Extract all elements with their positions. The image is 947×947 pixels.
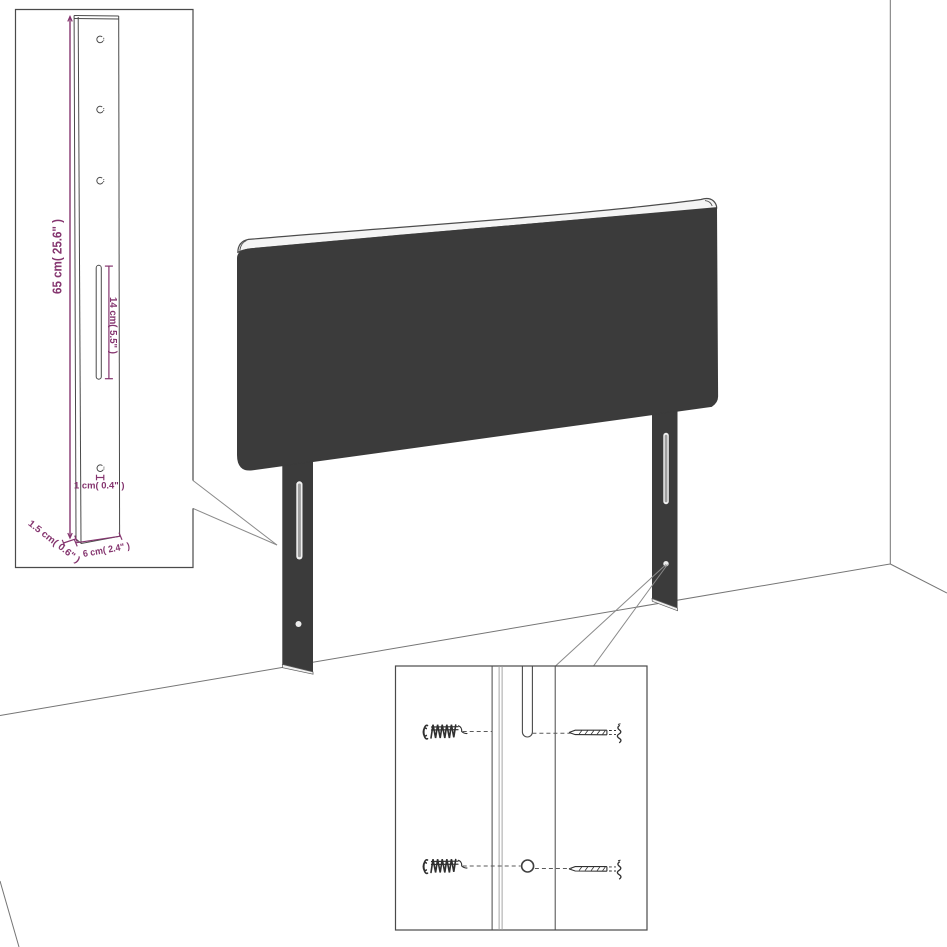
svg-text:14 cm( 5.5" ): 14 cm( 5.5" ) bbox=[107, 297, 118, 354]
svg-text:65 cm( 25.6" ): 65 cm( 25.6" ) bbox=[50, 219, 65, 294]
svg-text:1 cm( 0.4" ): 1 cm( 0.4" ) bbox=[74, 481, 125, 491]
